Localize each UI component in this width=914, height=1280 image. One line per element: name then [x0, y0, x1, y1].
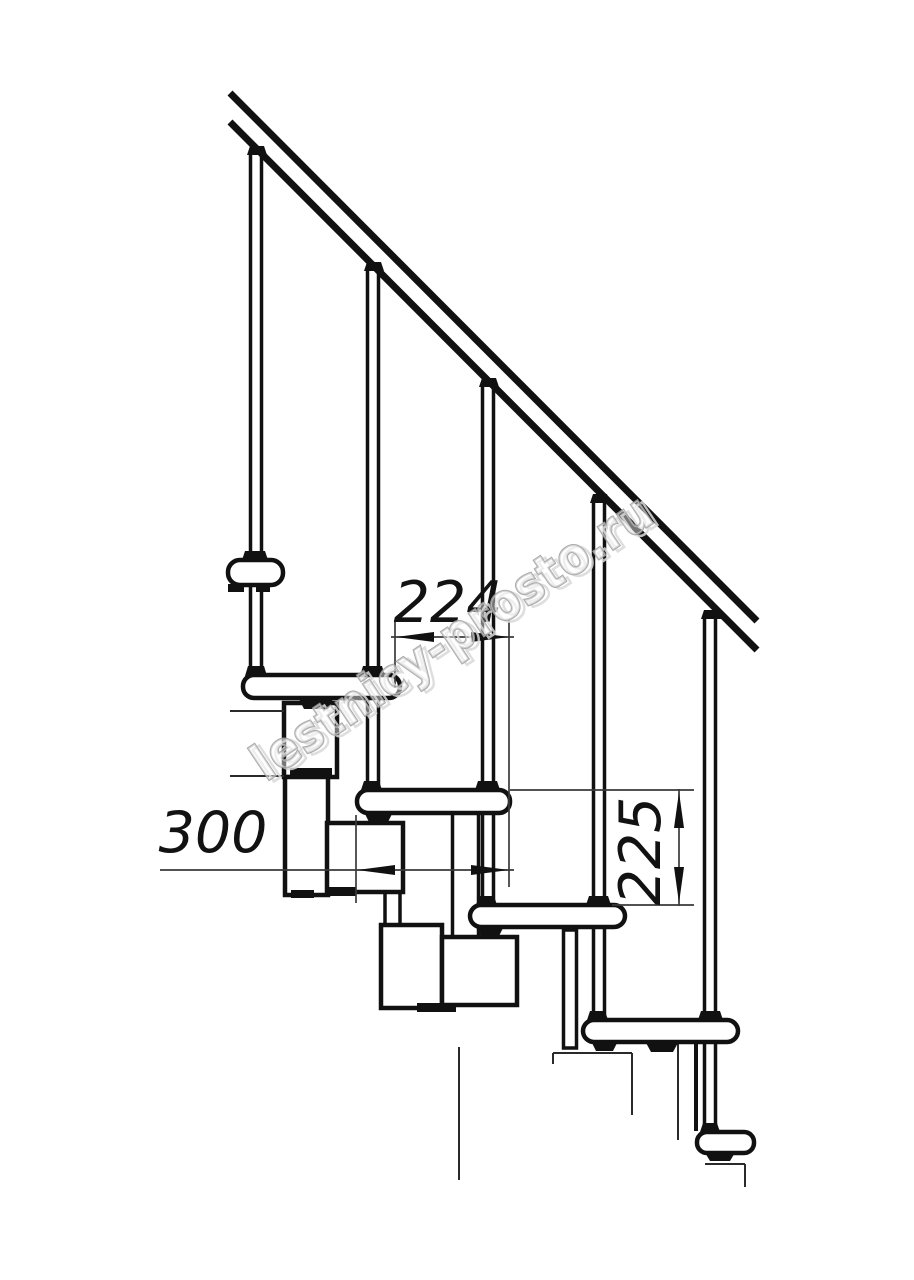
- upper-flight-tread-edge: [228, 560, 283, 585]
- module-tube-under-tread-3: [564, 930, 577, 1048]
- staircase-drawing: 224 300 225 lestnicy-prosto.ru lestnicy-…: [0, 0, 914, 1280]
- dimension-label-225: 225: [608, 797, 674, 906]
- module-box-3b: [442, 937, 517, 1005]
- baluster-5: [705, 614, 716, 1133]
- technical-drawing-canvas: 224 300 225 lestnicy-prosto.ru lestnicy-…: [0, 0, 914, 1280]
- arrow-225-up: [674, 792, 684, 828]
- watermark-text: lestnicy-prosto.ru: [240, 482, 663, 792]
- tread-2: [357, 790, 510, 813]
- module-box-2a: [285, 777, 328, 895]
- module-box-3a: [381, 925, 442, 1008]
- dimension-label-300: 300: [159, 800, 268, 866]
- tread-5: [697, 1132, 754, 1153]
- arrow-300-right: [471, 865, 509, 875]
- tread-4: [583, 1020, 738, 1042]
- arrow-225-down: [674, 867, 684, 903]
- tread-3: [470, 905, 625, 927]
- module-box-2b: [327, 823, 403, 892]
- baluster-1: [251, 150, 262, 676]
